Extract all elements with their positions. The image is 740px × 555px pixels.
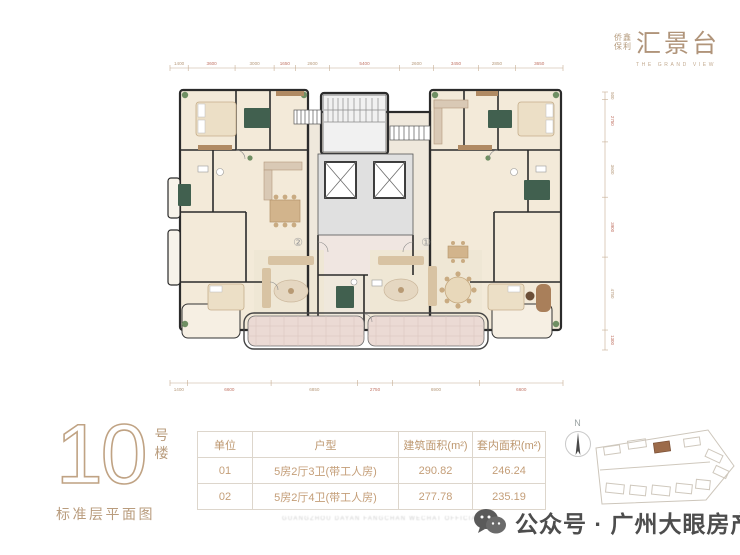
svg-text:6600: 6600 bbox=[516, 387, 527, 392]
building-suffix-2: 楼 bbox=[154, 444, 169, 462]
building-suffix-1: 号 bbox=[154, 426, 169, 444]
svg-text:1650: 1650 bbox=[280, 61, 291, 66]
table-cell: 5房2厅4卫(带工人房) bbox=[253, 484, 399, 510]
stair-core bbox=[323, 95, 386, 152]
table-cell: 02 bbox=[198, 484, 253, 510]
dimension-line-bottom: 140066006850275069006600 bbox=[170, 380, 563, 392]
floor-plan-caption: 标准层平面图 bbox=[56, 504, 186, 524]
wechat-footer: 公众号 · 广州大眼房产 bbox=[472, 505, 740, 539]
table-cell: 290.82 bbox=[399, 458, 473, 484]
table-header-cell: 户型 bbox=[253, 432, 399, 458]
page: { "logo": { "brand_small_top": "侨鑫", "br… bbox=[0, 0, 740, 555]
building-label: 10 号 楼 标准层平面图 bbox=[56, 418, 186, 524]
svg-text:6900: 6900 bbox=[431, 387, 442, 392]
logo-tagline: THE GRAND VIEW bbox=[636, 62, 716, 68]
site-map bbox=[588, 426, 736, 510]
wechat-icon bbox=[472, 507, 508, 537]
svg-text:3600: 3600 bbox=[610, 165, 615, 175]
svg-text:5400: 5400 bbox=[359, 61, 370, 66]
table-body: 015房2厅3卫(带工人房)290.82246.24025房2厅4卫(带工人房)… bbox=[198, 458, 546, 510]
building-number: 10 bbox=[56, 418, 145, 490]
svg-text:2750: 2750 bbox=[370, 387, 381, 392]
project-logo: 侨鑫 保利 汇景台 THE GRAND VIEW bbox=[614, 24, 732, 68]
table-header-cell: 单位 bbox=[198, 432, 253, 458]
dimension-line-right: 50027503600390047501300 bbox=[602, 92, 615, 350]
svg-text:3600: 3600 bbox=[207, 61, 218, 66]
svg-text:4750: 4750 bbox=[610, 289, 615, 299]
svg-text:1400: 1400 bbox=[174, 61, 185, 66]
svg-text:1400: 1400 bbox=[174, 387, 185, 392]
table-cell: 246.24 bbox=[473, 458, 546, 484]
svg-text:2850: 2850 bbox=[492, 61, 503, 66]
floor-plan: ② ① 140036003000165026005400260034502850… bbox=[158, 50, 623, 398]
table-header-row: 单位户型建筑面积(m²)套内面积(m²) bbox=[198, 432, 546, 458]
svg-text:3000: 3000 bbox=[249, 61, 260, 66]
svg-text:2600: 2600 bbox=[411, 61, 422, 66]
table-cell: 277.78 bbox=[399, 484, 473, 510]
table-row: 015房2厅3卫(带工人房)290.82246.24 bbox=[198, 458, 546, 484]
svg-text:3650: 3650 bbox=[534, 61, 545, 66]
svg-text:6600: 6600 bbox=[224, 387, 235, 392]
highlighted-building bbox=[653, 441, 670, 453]
table-header-cell: 套内面积(m²) bbox=[473, 432, 546, 458]
unit-spec-table: 单位户型建筑面积(m²)套内面积(m²) 015房2厅3卫(带工人房)290.8… bbox=[197, 431, 546, 510]
unit-1-label: ① bbox=[421, 237, 431, 249]
wechat-account-name: 公众号 · 广州大眼房产 bbox=[515, 505, 740, 539]
table-cell: 5房2厅3卫(带工人房) bbox=[253, 458, 399, 484]
logo-title: 汇景台 bbox=[636, 24, 720, 60]
svg-text:6850: 6850 bbox=[309, 387, 320, 392]
unit-2-label: ② bbox=[293, 237, 303, 249]
svg-text:3900: 3900 bbox=[610, 222, 615, 232]
table-cell: 01 bbox=[198, 458, 253, 484]
elevator-lobby bbox=[318, 154, 413, 235]
svg-text:2600: 2600 bbox=[307, 61, 318, 66]
dimension-line-top: 1400360030001650260054002600345028503650 bbox=[170, 61, 563, 71]
svg-text:500: 500 bbox=[610, 92, 615, 100]
logo-brand-top: 侨鑫 bbox=[614, 33, 632, 42]
svg-text:1300: 1300 bbox=[610, 335, 615, 345]
svg-text:2750: 2750 bbox=[610, 116, 615, 126]
svg-text:3450: 3450 bbox=[451, 61, 462, 66]
watermark: GUANGZHOU DAYAN FANGCHAN WECHAT OFFICIAL… bbox=[282, 516, 482, 522]
table-header-cell: 建筑面积(m²) bbox=[399, 432, 473, 458]
